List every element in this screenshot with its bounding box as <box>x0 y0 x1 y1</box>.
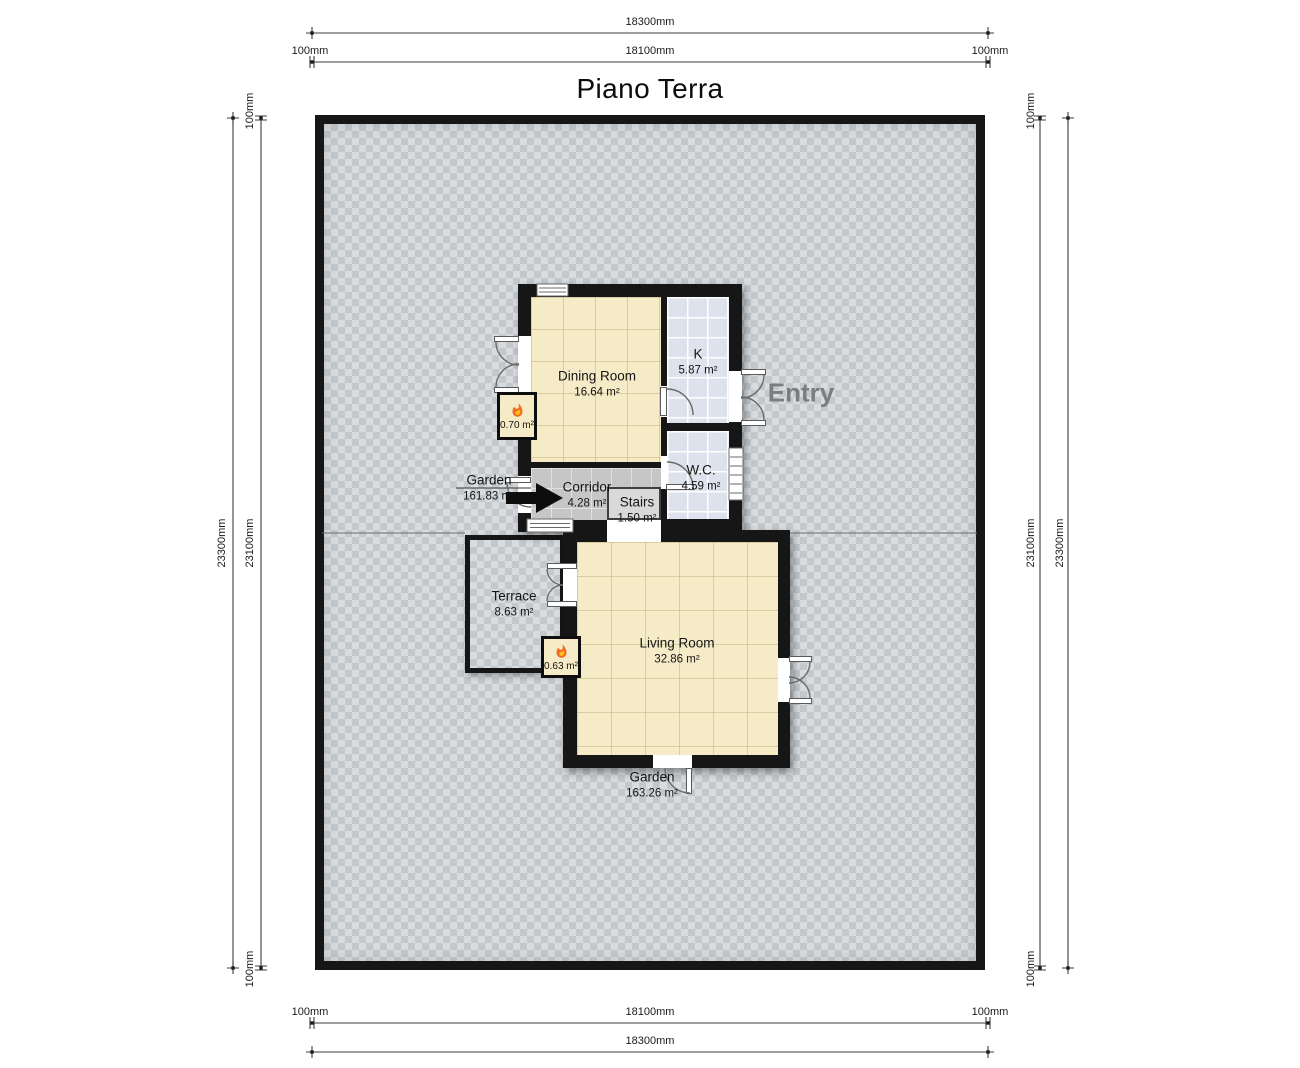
room-name: Living Room <box>639 635 714 652</box>
dim-bottom-total: 18300mm <box>626 1035 675 1047</box>
fireplace-living: 0.63 m² <box>541 636 581 678</box>
entry-label: Entry <box>768 378 834 409</box>
room-label-stairs: Stairs 1.50 m² <box>618 494 657 525</box>
dim-right-top-offset: 100mm <box>1025 93 1037 130</box>
door-leaf <box>547 601 577 607</box>
room-area: 8.63 m² <box>491 605 536 619</box>
opening-living-garden-right <box>778 658 790 702</box>
room-name: W.C. <box>682 462 721 479</box>
opening-dining-garden <box>518 336 531 393</box>
room-label-garden-lower: Garden 163.26 m² <box>626 769 678 800</box>
door-leaf <box>494 336 519 342</box>
dim-bottom-right-offset: 100mm <box>972 1006 1009 1018</box>
door-leaf <box>741 369 766 375</box>
room-name: K <box>679 346 718 363</box>
door-leaf <box>789 698 812 704</box>
door-leaf <box>741 420 766 426</box>
dim-top-inner: 18100mm <box>626 45 675 57</box>
dim-top-total: 18300mm <box>626 16 675 28</box>
dim-right-inner: 23100mm <box>1025 519 1037 568</box>
fireplace-dining: 0.70 m² <box>497 392 537 440</box>
dim-left-inner: 23100mm <box>244 519 256 568</box>
flame-icon <box>510 402 525 419</box>
room-name: Garden <box>626 769 678 786</box>
room-name: Dining Room <box>558 368 636 385</box>
room-label-wc: W.C. 4.59 m² <box>682 462 721 493</box>
door-leaf <box>789 656 812 662</box>
door-leaf <box>547 563 577 569</box>
dim-left-top-offset: 100mm <box>244 93 256 130</box>
room-area: 161.83 m² <box>463 489 515 503</box>
room-label-terrace: Terrace 8.63 m² <box>491 588 536 619</box>
room-label-corridor: Corridor 4.28 m² <box>563 479 612 510</box>
room-area: 16.64 m² <box>558 385 636 399</box>
room-area: 163.26 m² <box>626 786 678 800</box>
room-area: 1.50 m² <box>618 511 657 525</box>
room-label-kitchen: K 5.87 m² <box>679 346 718 377</box>
dim-right-total: 23300mm <box>1054 519 1066 568</box>
room-name: Terrace <box>491 588 536 605</box>
fireplace-area-label: 0.70 m² <box>500 420 534 431</box>
room-area: 4.59 m² <box>682 479 721 493</box>
room-name: Stairs <box>618 494 657 511</box>
door-leaf <box>686 768 692 794</box>
room-name: Garden <box>463 472 515 489</box>
floor-plan-canvas: Piano Terra 18300mm 100mm 18100mm 100mm … <box>0 0 1300 1068</box>
page-title: Piano Terra <box>576 73 723 105</box>
dim-bottom-left-offset: 100mm <box>292 1006 329 1018</box>
room-area: 4.28 m² <box>563 496 612 510</box>
flame-icon <box>554 643 569 660</box>
fireplace-area-label: 0.63 m² <box>544 661 578 672</box>
dim-left-bottom-offset: 100mm <box>244 951 256 988</box>
opening-entry <box>729 371 742 422</box>
room-label-living: Living Room 32.86 m² <box>639 635 714 666</box>
dim-top-right-offset: 100mm <box>972 45 1009 57</box>
room-name: Corridor <box>563 479 612 496</box>
room-area: 32.86 m² <box>639 652 714 666</box>
dim-left-total: 23300mm <box>216 519 228 568</box>
room-area: 5.87 m² <box>679 363 718 377</box>
door-leaf <box>660 387 667 416</box>
room-label-dining: Dining Room 16.64 m² <box>558 368 636 399</box>
opening-living-garden-bottom <box>653 755 692 768</box>
dim-top-left-offset: 100mm <box>292 45 329 57</box>
dim-right-bottom-offset: 100mm <box>1025 951 1037 988</box>
room-label-garden-upper: Garden 161.83 m² <box>463 472 515 503</box>
dim-bottom-inner: 18100mm <box>626 1006 675 1018</box>
